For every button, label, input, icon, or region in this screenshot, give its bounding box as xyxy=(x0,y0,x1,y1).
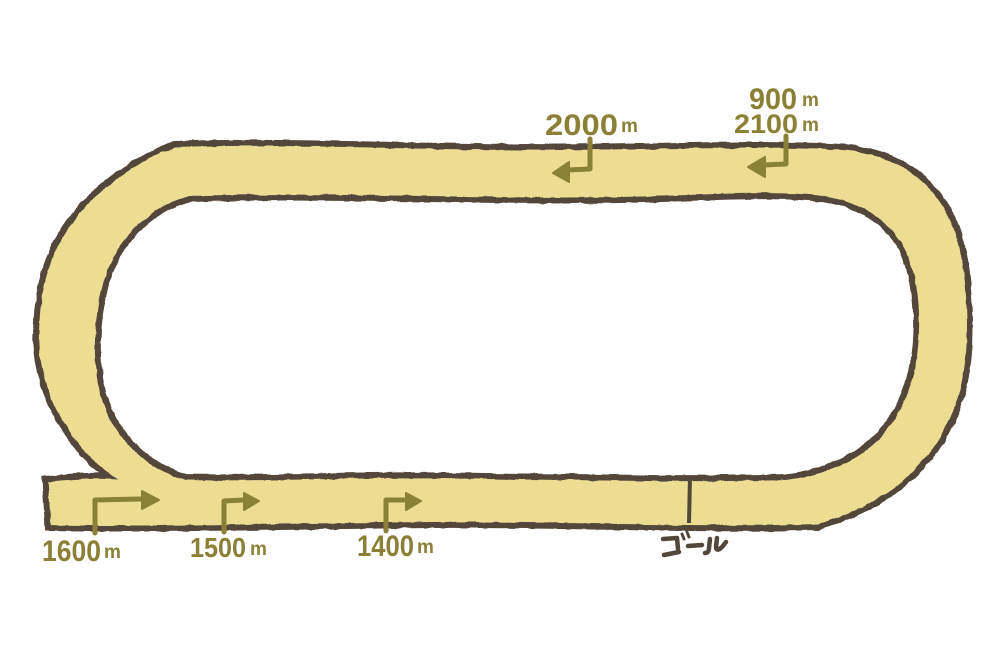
svg-text:1400: 1400 xyxy=(357,530,414,563)
svg-text:2100: 2100 xyxy=(734,109,798,139)
svg-text:m: m xyxy=(621,116,638,137)
svg-text:m: m xyxy=(250,539,267,560)
svg-text:1500: 1500 xyxy=(190,532,246,563)
svg-text:2000: 2000 xyxy=(545,109,618,142)
svg-text:m: m xyxy=(802,115,819,136)
svg-text:m: m xyxy=(417,537,434,558)
svg-text:m: m xyxy=(802,90,819,111)
svg-text:1600: 1600 xyxy=(42,535,101,568)
svg-text:m: m xyxy=(104,542,121,563)
